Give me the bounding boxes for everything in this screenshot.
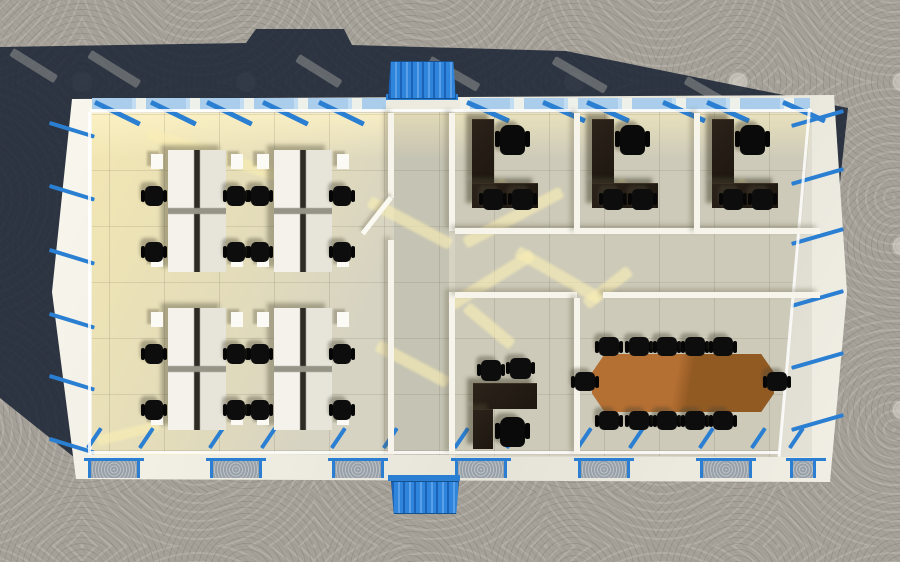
office-desk-return: [472, 119, 494, 183]
executive-chair: [500, 125, 525, 155]
office-desk-return: [712, 119, 734, 183]
task-chair: [227, 186, 245, 206]
meeting-chair: [685, 411, 705, 430]
meeting-chair: [713, 337, 733, 356]
entrance-canopy-bottom: [391, 481, 459, 514]
guest-chair: [510, 358, 531, 379]
desk-cabinet: [231, 154, 243, 169]
task-chair: [251, 344, 269, 364]
meeting-chair: [713, 411, 733, 430]
desk-cabinet: [257, 154, 269, 169]
bottom-wall-window: [790, 461, 816, 478]
executive-chair: [620, 125, 645, 155]
office-desk-return: [592, 119, 614, 183]
task-chair: [227, 344, 245, 364]
desk-cabinet: [151, 154, 163, 169]
task-chair: [145, 242, 163, 262]
desk-cabinet: [231, 312, 243, 327]
shadow-window-reflection: [295, 54, 342, 88]
floor-edge-left: [88, 112, 91, 455]
floor-edge-bottom: [90, 451, 780, 454]
executive-chair: [740, 125, 765, 155]
task-chair: [333, 186, 351, 206]
corridor-wall-left-upper: [388, 113, 394, 198]
task-chair: [251, 186, 269, 206]
guest-chair: [752, 189, 773, 210]
guest-chair: [483, 189, 503, 210]
desk-cabinet: [337, 312, 349, 327]
desk-cabinet: [151, 312, 163, 327]
corridor-wall-left-lower: [388, 240, 394, 454]
entrance-canopy-top: [388, 61, 456, 99]
rooms-top-wall-b: [603, 292, 820, 298]
task-chair: [145, 344, 163, 364]
meeting-chair: [575, 372, 595, 391]
guest-chair: [512, 189, 533, 210]
task-chair: [251, 242, 269, 262]
desk-cabinet: [257, 312, 269, 327]
offices-bottom-wall: [455, 228, 820, 234]
bottom-wall-window: [332, 461, 384, 478]
office-partition-2: [694, 113, 700, 234]
task-chair: [145, 186, 163, 206]
meeting-chair: [599, 411, 619, 430]
workstation-cluster-desks: [168, 308, 226, 430]
meeting-chair: [657, 337, 677, 356]
shadow-window-reflection: [552, 56, 608, 94]
corridor-wall-right-upper: [449, 113, 455, 231]
guest-chair: [632, 189, 653, 210]
bottom-wall-window: [455, 461, 507, 478]
office-floorplan-render: [0, 0, 900, 562]
task-chair: [333, 400, 351, 420]
workstation-cluster-desks: [168, 150, 226, 272]
meeting-chair: [629, 411, 649, 430]
meeting-chair: [657, 411, 677, 430]
workstation-cluster-desks: [274, 150, 332, 272]
bottom-wall-window: [210, 461, 262, 478]
executive-chair: [500, 417, 525, 447]
desk-cabinet: [337, 154, 349, 169]
meeting-chair: [685, 337, 705, 356]
task-chair: [145, 400, 163, 420]
task-chair: [227, 242, 245, 262]
bottom-wall-window: [578, 461, 630, 478]
meeting-chair: [599, 337, 619, 356]
office-partition-1: [574, 113, 580, 234]
conference-table: [592, 354, 774, 412]
guest-chair: [603, 189, 623, 210]
task-chair: [333, 344, 351, 364]
bottom-wall-window: [700, 461, 752, 478]
rooms-top-wall-a: [455, 292, 577, 298]
office-desk-return: [473, 409, 493, 449]
guest-chair: [723, 189, 743, 210]
workstation-cluster-desks: [274, 308, 332, 430]
guest-chair: [481, 360, 501, 381]
shadow-window-reflection: [87, 50, 141, 88]
task-chair: [333, 242, 351, 262]
corridor-wall-right-lower: [449, 292, 455, 454]
shadow-window-reflection: [9, 48, 58, 83]
floor-edge-top: [90, 109, 812, 112]
meeting-chair: [767, 372, 787, 391]
office-desk: [473, 383, 537, 409]
bottom-wall-window: [88, 461, 140, 478]
task-chair: [251, 400, 269, 420]
task-chair: [227, 400, 245, 420]
entrance-lintel-bottom: [388, 475, 460, 481]
meeting-chair: [629, 337, 649, 356]
